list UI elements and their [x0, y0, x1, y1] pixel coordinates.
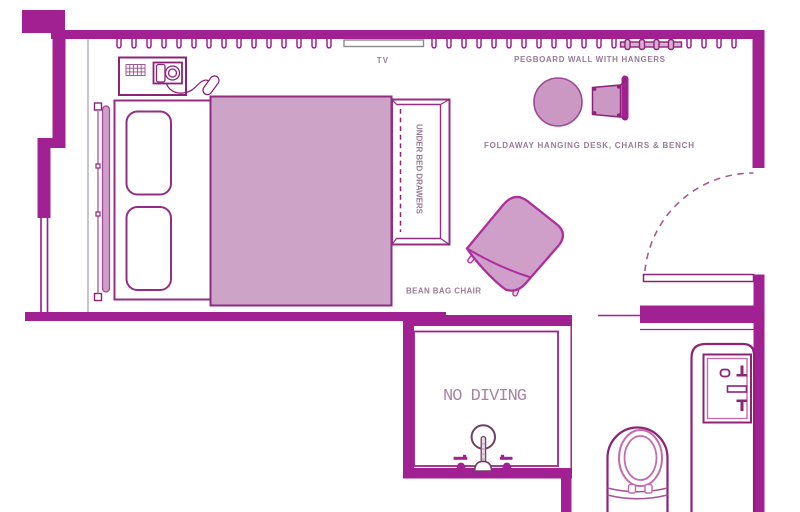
svg-text:FOLDAWAY HANGING DESK, CHAIRS: FOLDAWAY HANGING DESK, CHAIRS & BENCH — [484, 141, 694, 150]
svg-text:NO DIVING: NO DIVING — [443, 387, 527, 406]
svg-text:BEAN BAG CHAIR: BEAN BAG CHAIR — [406, 287, 481, 296]
svg-text:PEGBOARD WALL WITH HANGERS: PEGBOARD WALL WITH HANGERS — [514, 55, 666, 64]
svg-text:UNDER BED DRAWERS: UNDER BED DRAWERS — [415, 124, 424, 215]
svg-text:TV: TV — [377, 56, 390, 65]
